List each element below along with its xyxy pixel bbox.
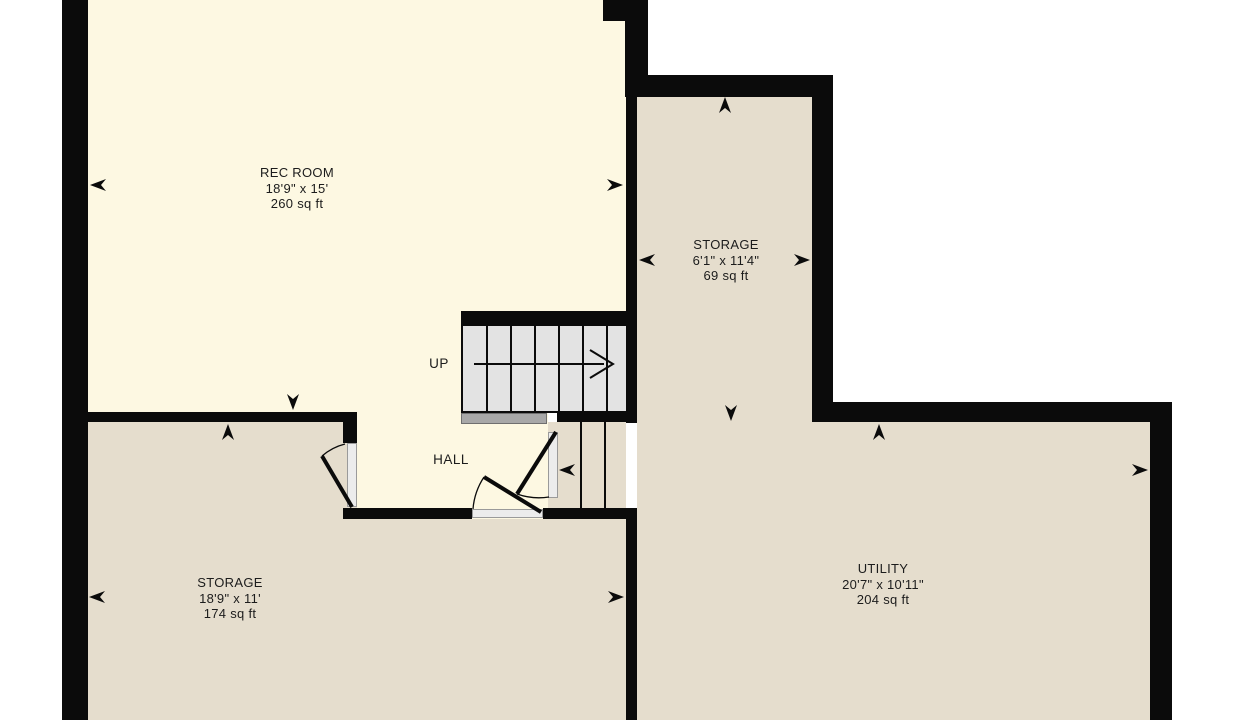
room-area: 260 sq ft	[260, 196, 334, 212]
wall-storage-utility-divider	[626, 519, 637, 720]
door-opening	[548, 432, 558, 498]
wall-top-step	[603, 0, 648, 21]
wall-hall-bottom-left	[343, 508, 472, 519]
staircase	[461, 324, 628, 413]
room-dimensions: 18'9" x 15'	[260, 181, 334, 197]
wall-rec-south	[62, 412, 357, 422]
hall-label: HALL	[433, 452, 469, 467]
room-name: UTILITY	[842, 561, 924, 577]
room-area: 174 sq ft	[197, 606, 262, 622]
wall-exterior-left	[62, 0, 88, 720]
room-label-storage-upper: STORAGE 6'1" x 11'4" 69 sq ft	[693, 237, 760, 284]
lower-stair-flight	[558, 422, 626, 508]
stair-tread-line	[534, 326, 536, 411]
wall-storage-upper-top	[625, 75, 833, 97]
room-name: STORAGE	[693, 237, 760, 253]
room-dimensions: 6'1" x 11'4"	[693, 253, 760, 269]
wall-utility-right	[1150, 422, 1172, 720]
wall-under-stair	[557, 413, 637, 422]
wall-storage-upper-right	[812, 97, 833, 422]
stair-tread-line	[582, 326, 584, 411]
stair-tread-line	[580, 422, 582, 508]
room-label-storage-lower: STORAGE 18'9" x 11' 174 sq ft	[197, 575, 262, 622]
wall-top-step-lower	[625, 21, 648, 77]
room-name: REC ROOM	[260, 165, 334, 181]
room-name: STORAGE	[197, 575, 262, 591]
stair-tread-line	[486, 326, 488, 411]
wall-hall-bottom-right	[543, 508, 637, 519]
room-dimensions: 18'9" x 11'	[197, 591, 262, 607]
room-dimensions: 20'7" x 10'11"	[842, 577, 924, 593]
room-label-rec-room: REC ROOM 18'9" x 15' 260 sq ft	[260, 165, 334, 212]
stair-tread-line	[604, 422, 606, 508]
door-opening	[472, 509, 543, 518]
stair-landing	[461, 413, 547, 424]
stair-tread-line	[558, 326, 560, 411]
room-area: 204 sq ft	[842, 592, 924, 608]
room-label-utility: UTILITY 20'7" x 10'11" 204 sq ft	[842, 561, 924, 608]
wall-door-post	[343, 422, 357, 443]
wall-utility-top	[833, 402, 1172, 422]
basement-floor-plan: REC ROOM 18'9" x 15' 260 sq ft STORAGE 6…	[0, 0, 1240, 720]
stairs-up-label: UP	[429, 356, 449, 371]
stair-tread-line	[606, 326, 608, 411]
wall-stair-top	[461, 311, 637, 324]
door-opening	[347, 443, 357, 507]
stair-tread-line	[510, 326, 512, 411]
room-area: 69 sq ft	[693, 268, 760, 284]
